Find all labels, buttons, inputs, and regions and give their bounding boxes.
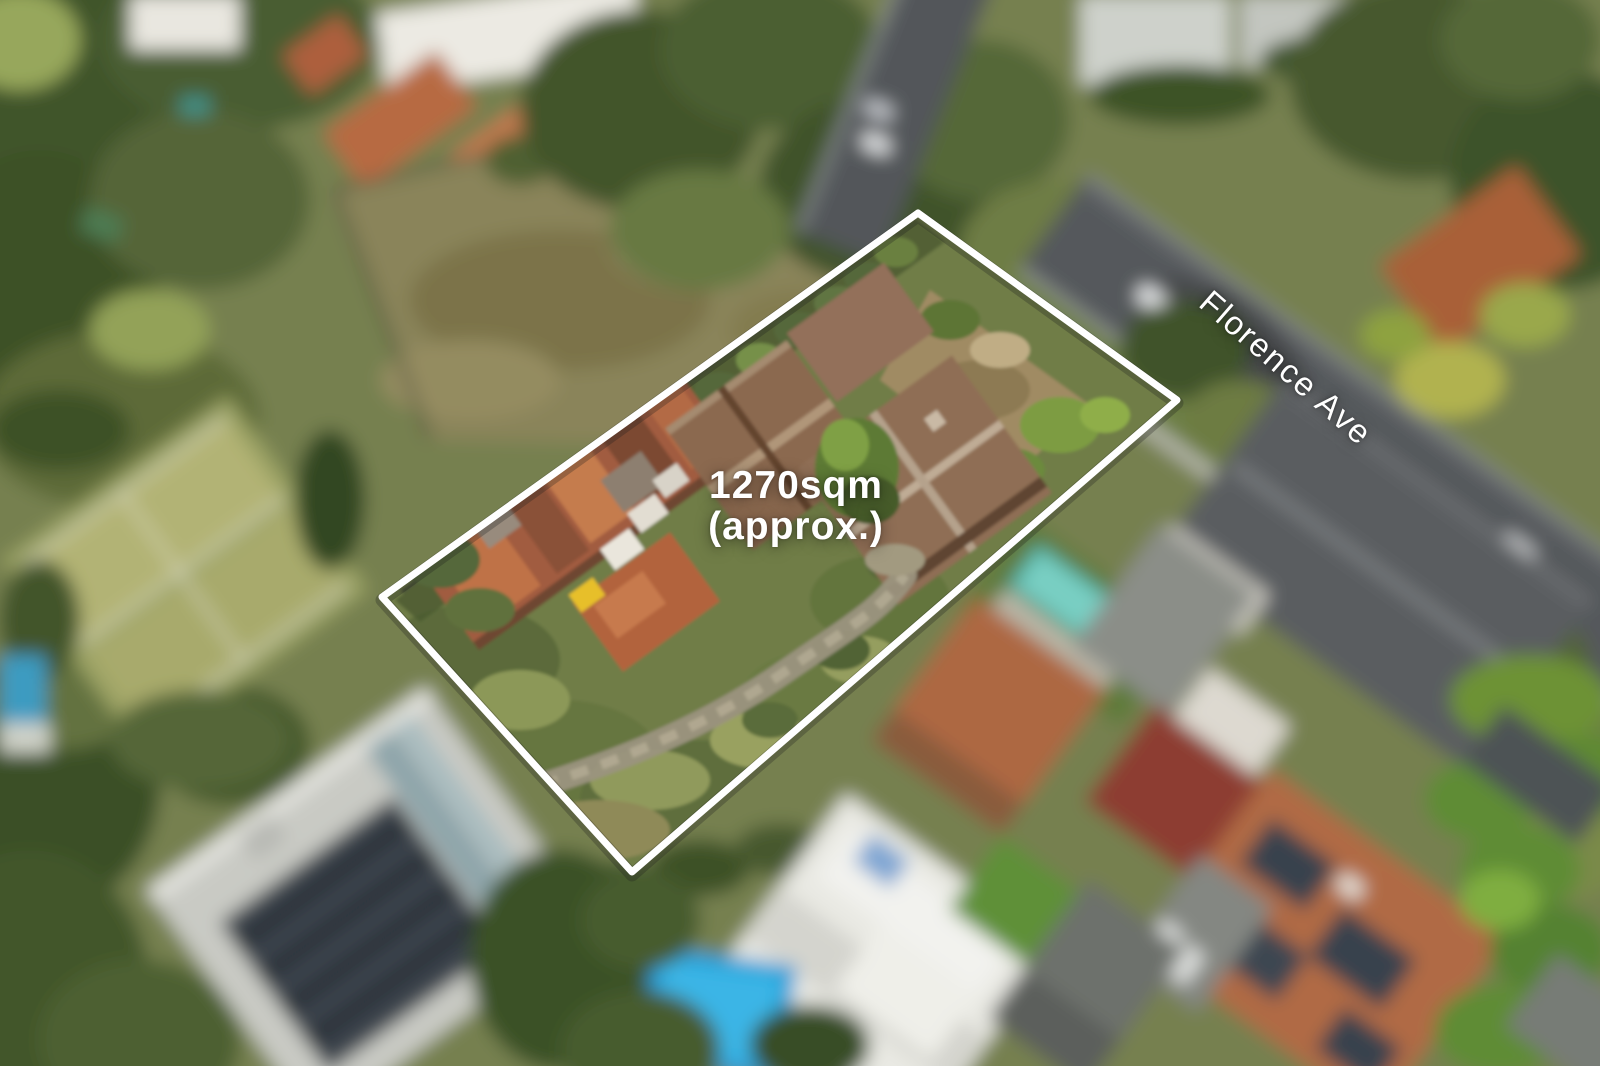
aerial-photo: 1270sqm (approx.) Florence Ave (0, 0, 1600, 1066)
lot-area-approx: (approx.) (708, 507, 884, 548)
lot-area-value: 1270sqm (708, 466, 884, 507)
lot-area-label: 1270sqm (approx.) (708, 466, 884, 548)
